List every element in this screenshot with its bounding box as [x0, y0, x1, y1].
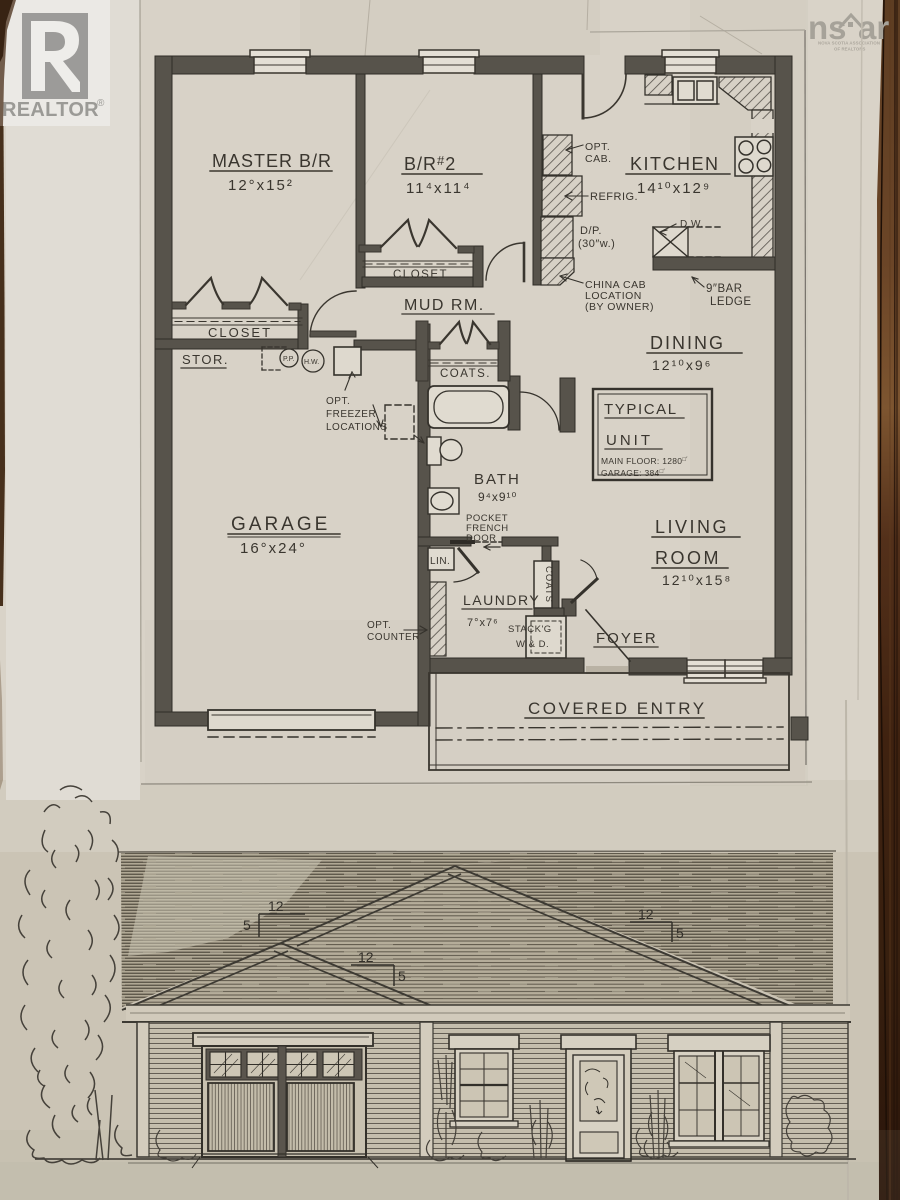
svg-text:LIN.: LIN.	[430, 556, 450, 567]
svg-text:STOR.: STOR.	[182, 352, 229, 367]
svg-text:DINING: DINING	[650, 333, 725, 353]
svg-text:5: 5	[243, 917, 251, 933]
svg-text:MAIN FLOOR: 1280□′: MAIN FLOOR: 1280□′	[601, 456, 688, 466]
svg-text:5: 5	[398, 968, 406, 984]
svg-text:CAB.: CAB.	[585, 153, 612, 165]
svg-text:12¹⁰x9⁶: 12¹⁰x9⁶	[652, 357, 712, 373]
svg-text:12°x15²: 12°x15²	[228, 177, 294, 194]
svg-text:MUD RM.: MUD RM.	[404, 297, 485, 314]
svg-text:REALTOR: REALTOR	[2, 99, 99, 121]
svg-text:W & D.: W & D.	[516, 639, 549, 650]
svg-text:KITCHEN: KITCHEN	[630, 154, 720, 174]
svg-text:11⁴x11⁴: 11⁴x11⁴	[406, 180, 472, 197]
svg-text:16°x24°: 16°x24°	[240, 540, 307, 557]
svg-text:FREEZER: FREEZER	[326, 409, 376, 420]
svg-text:ROOM: ROOM	[655, 548, 721, 568]
svg-text:COATS.: COATS.	[440, 368, 491, 380]
svg-text:LEDGE: LEDGE	[710, 296, 752, 308]
svg-text:COUNTER: COUNTER	[367, 632, 420, 643]
svg-text:5: 5	[676, 925, 684, 941]
svg-text:9″BAR: 9″BAR	[706, 283, 743, 295]
svg-text:12: 12	[268, 898, 284, 914]
svg-text:LIVING: LIVING	[655, 517, 729, 537]
svg-text:®: ®	[97, 98, 105, 109]
svg-text:14¹⁰x12⁹: 14¹⁰x12⁹	[637, 180, 711, 197]
svg-text:7°x7⁶: 7°x7⁶	[467, 617, 499, 629]
svg-text:CLOSET: CLOSET	[393, 269, 448, 281]
svg-text:D/P.: D/P.	[580, 225, 602, 237]
svg-text:OPT.: OPT.	[367, 620, 391, 631]
svg-text:GARAGE: 384□′: GARAGE: 384□′	[601, 468, 666, 478]
svg-text:GARAGE: GARAGE	[231, 514, 330, 535]
svg-text:D.W.: D.W.	[680, 219, 704, 230]
svg-text:BATH: BATH	[474, 471, 521, 488]
svg-text:9⁴x9¹⁰: 9⁴x9¹⁰	[478, 490, 517, 504]
svg-text:CLOSET: CLOSET	[208, 325, 272, 340]
svg-text:UNIT: UNIT	[606, 432, 653, 449]
svg-text:12: 12	[358, 949, 374, 965]
svg-text:OPT.: OPT.	[585, 141, 610, 153]
svg-text:12: 12	[638, 906, 654, 922]
svg-text:NOVA SCOTIA ASSOCIATION: NOVA SCOTIA ASSOCIATION	[818, 41, 880, 46]
svg-text:LAUNDRY: LAUNDRY	[463, 592, 540, 608]
svg-text:(30″w.): (30″w.)	[578, 238, 615, 250]
svg-text:DOOR: DOOR	[466, 533, 497, 544]
svg-text:P.P.: P.P.	[283, 356, 294, 363]
svg-text:COATS: COATS	[543, 566, 554, 603]
svg-text:OPT.: OPT.	[326, 396, 350, 407]
svg-text:MASTER B/R: MASTER B/R	[212, 151, 332, 171]
svg-text:TYPICAL: TYPICAL	[604, 401, 678, 418]
svg-text:B/R#2: B/R#2	[404, 153, 456, 174]
svg-text:COVERED ENTRY: COVERED ENTRY	[528, 699, 707, 718]
svg-text:OF REALTORS: OF REALTORS	[834, 47, 866, 52]
svg-text:FOYER: FOYER	[596, 630, 658, 647]
svg-text:(BY OWNER): (BY OWNER)	[585, 301, 654, 313]
svg-text:REFRIG.: REFRIG.	[590, 191, 638, 203]
svg-text:H.W.: H.W.	[304, 359, 319, 366]
svg-text:12¹⁰x15⁸: 12¹⁰x15⁸	[662, 572, 732, 588]
svg-text:STACK'G: STACK'G	[508, 624, 552, 635]
